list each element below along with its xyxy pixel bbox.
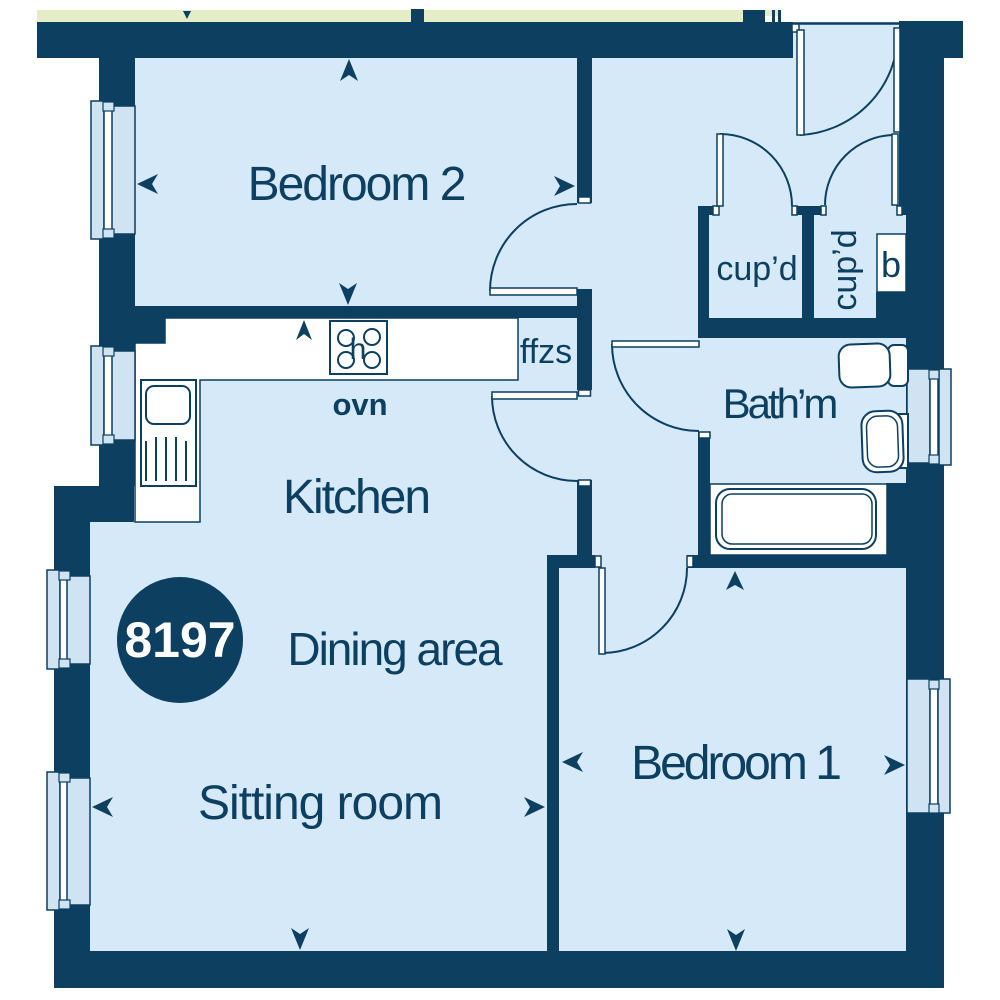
svg-text:Sitting room: Sitting room	[198, 777, 442, 830]
svg-text:b: b	[881, 244, 901, 285]
svg-text:Dining area: Dining area	[287, 623, 503, 675]
svg-text:ffzs: ffzs	[520, 333, 572, 371]
svg-text:cup’d: cup’d	[716, 250, 797, 288]
svg-text:h: h	[350, 333, 367, 366]
svg-text:cup’d: cup’d	[826, 229, 864, 310]
svg-text:ovn: ovn	[332, 387, 387, 422]
svg-text:Bath’m: Bath’m	[723, 380, 837, 427]
svg-text:Bedroom 2: Bedroom 2	[248, 158, 465, 211]
svg-text:Kitchen: Kitchen	[283, 471, 429, 524]
svg-text:Bedroom 1: Bedroom 1	[631, 737, 840, 790]
svg-text:8197: 8197	[124, 612, 235, 668]
